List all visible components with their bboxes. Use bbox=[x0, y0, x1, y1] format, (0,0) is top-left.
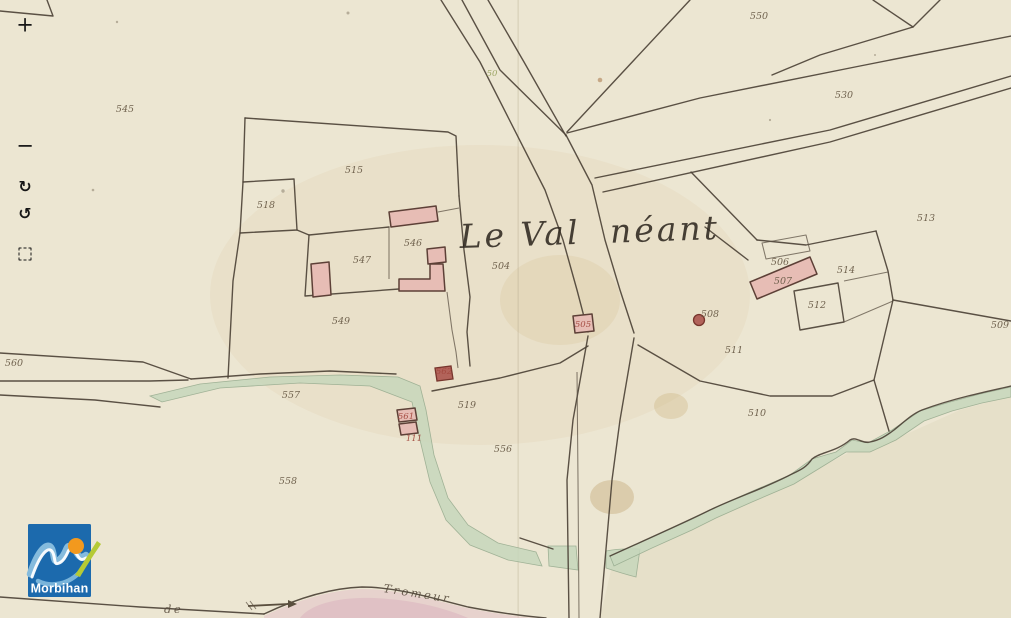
parcel-label: 512 bbox=[808, 300, 826, 311]
logo-text: Morbihan bbox=[31, 582, 89, 596]
cadastral-map-canvas[interactable]: Le Val néant de Tromeur 5455155185465475… bbox=[0, 0, 1011, 618]
parcel-label: 519 bbox=[458, 400, 476, 411]
map-viewer: Le Val néant de Tromeur 5455155185465475… bbox=[0, 0, 1011, 618]
parcel-label: 557 bbox=[282, 390, 301, 401]
parcel-label: 507 bbox=[774, 276, 793, 287]
parcel-label: 505 bbox=[575, 320, 591, 330]
parcel-label: 508 bbox=[701, 309, 719, 320]
parcel-label: 560 bbox=[5, 358, 23, 369]
zoom-out-button[interactable]: − bbox=[16, 136, 34, 157]
stream-ford-left bbox=[548, 546, 578, 570]
parcel-label: 549 bbox=[332, 316, 350, 327]
parcel-label: 546 bbox=[404, 238, 422, 249]
map-title-part1: Le Val bbox=[458, 213, 581, 256]
parcel-label: 111 bbox=[406, 434, 422, 444]
rotate-counterclockwise-button[interactable]: ↺ bbox=[18, 206, 31, 222]
parcel-label: 515 bbox=[345, 165, 363, 176]
parcel-label: 561 bbox=[398, 412, 414, 422]
parcel-label: 504 bbox=[492, 261, 510, 272]
morbihan-logo[interactable]: Morbihan bbox=[22, 518, 116, 606]
area-select-button[interactable] bbox=[19, 248, 32, 261]
parcel-label: 556 bbox=[494, 444, 512, 455]
parcel-label: 530 bbox=[835, 90, 853, 101]
zoom-in-button[interactable]: + bbox=[16, 15, 34, 36]
parcel-label: 506 bbox=[771, 257, 789, 268]
building bbox=[427, 247, 446, 264]
parcel-label: 518 bbox=[257, 200, 275, 211]
parcel-label: 545 bbox=[116, 104, 134, 115]
building bbox=[311, 262, 331, 297]
area-select-icon bbox=[19, 248, 32, 261]
parcel-label: 562 bbox=[436, 367, 452, 377]
parcel-label: 547 bbox=[353, 255, 372, 266]
parcel-label: 550 bbox=[750, 11, 768, 22]
place-label-de: de bbox=[164, 602, 183, 616]
parcel-label: 558 bbox=[279, 476, 297, 487]
parcel-label: 511 bbox=[725, 345, 743, 356]
parcel-label: 50 bbox=[487, 69, 498, 79]
logo-sun-icon bbox=[68, 538, 84, 554]
parcel-label: 513 bbox=[917, 213, 935, 224]
parcel-label: 510 bbox=[748, 408, 766, 419]
rotate-clockwise-button[interactable]: ↻ bbox=[18, 179, 31, 195]
parcel-label: 514 bbox=[837, 265, 855, 276]
parcel-label: 509 bbox=[991, 320, 1009, 331]
map-title-part2: néant bbox=[609, 208, 720, 251]
